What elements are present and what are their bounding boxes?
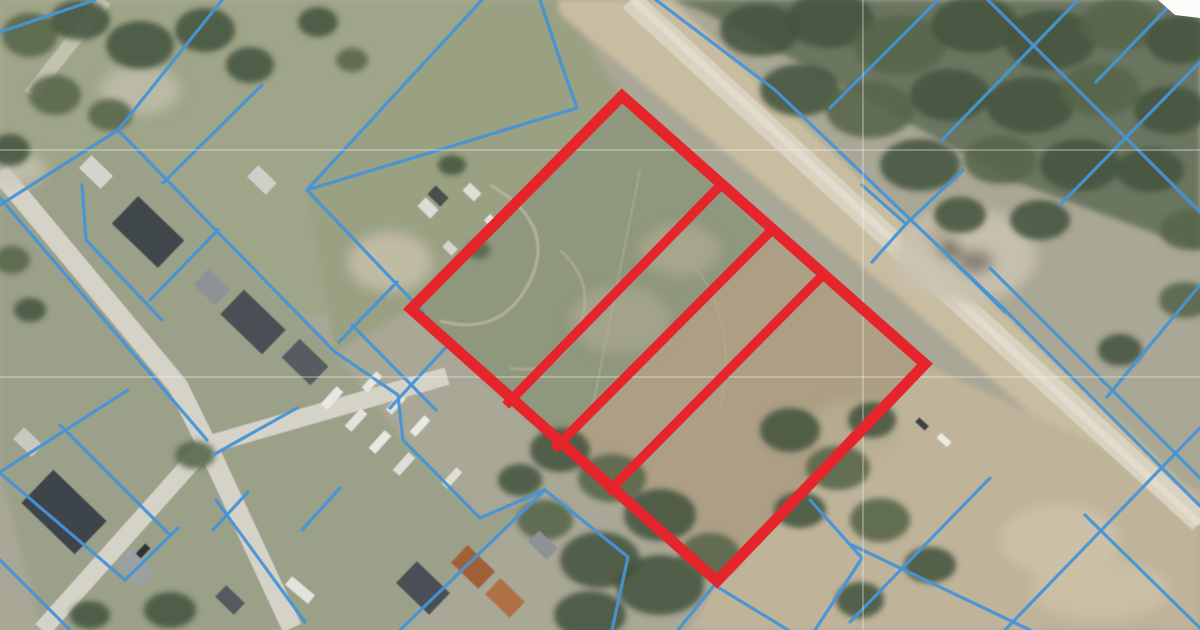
- tree-cluster: [826, 82, 914, 138]
- tree-cluster: [934, 197, 986, 233]
- tree-cluster: [760, 408, 820, 452]
- tree-cluster: [70, 601, 110, 629]
- tree-cluster: [144, 592, 196, 628]
- tree-cluster: [964, 136, 1036, 184]
- map-viewport[interactable]: [0, 0, 1200, 630]
- tree-cluster: [14, 298, 46, 322]
- tree-cluster: [910, 69, 990, 121]
- tree-cluster: [438, 155, 466, 175]
- tree-cluster: [850, 498, 910, 542]
- ground-patch: [1030, 560, 1170, 620]
- tree-cluster: [88, 99, 132, 131]
- tree-cluster: [298, 7, 338, 37]
- tree-cluster: [1060, 64, 1140, 116]
- tree-cluster: [904, 547, 956, 583]
- tree-cluster: [29, 75, 81, 115]
- tree-cluster: [498, 464, 542, 496]
- ground-patch: [348, 232, 432, 292]
- tree-cluster: [336, 48, 368, 72]
- aerial-parcel-map[interactable]: [0, 0, 1200, 630]
- tree-cluster: [106, 21, 174, 69]
- tree-cluster: [2, 13, 58, 57]
- tree-cluster: [226, 47, 274, 83]
- tree-cluster: [175, 441, 215, 469]
